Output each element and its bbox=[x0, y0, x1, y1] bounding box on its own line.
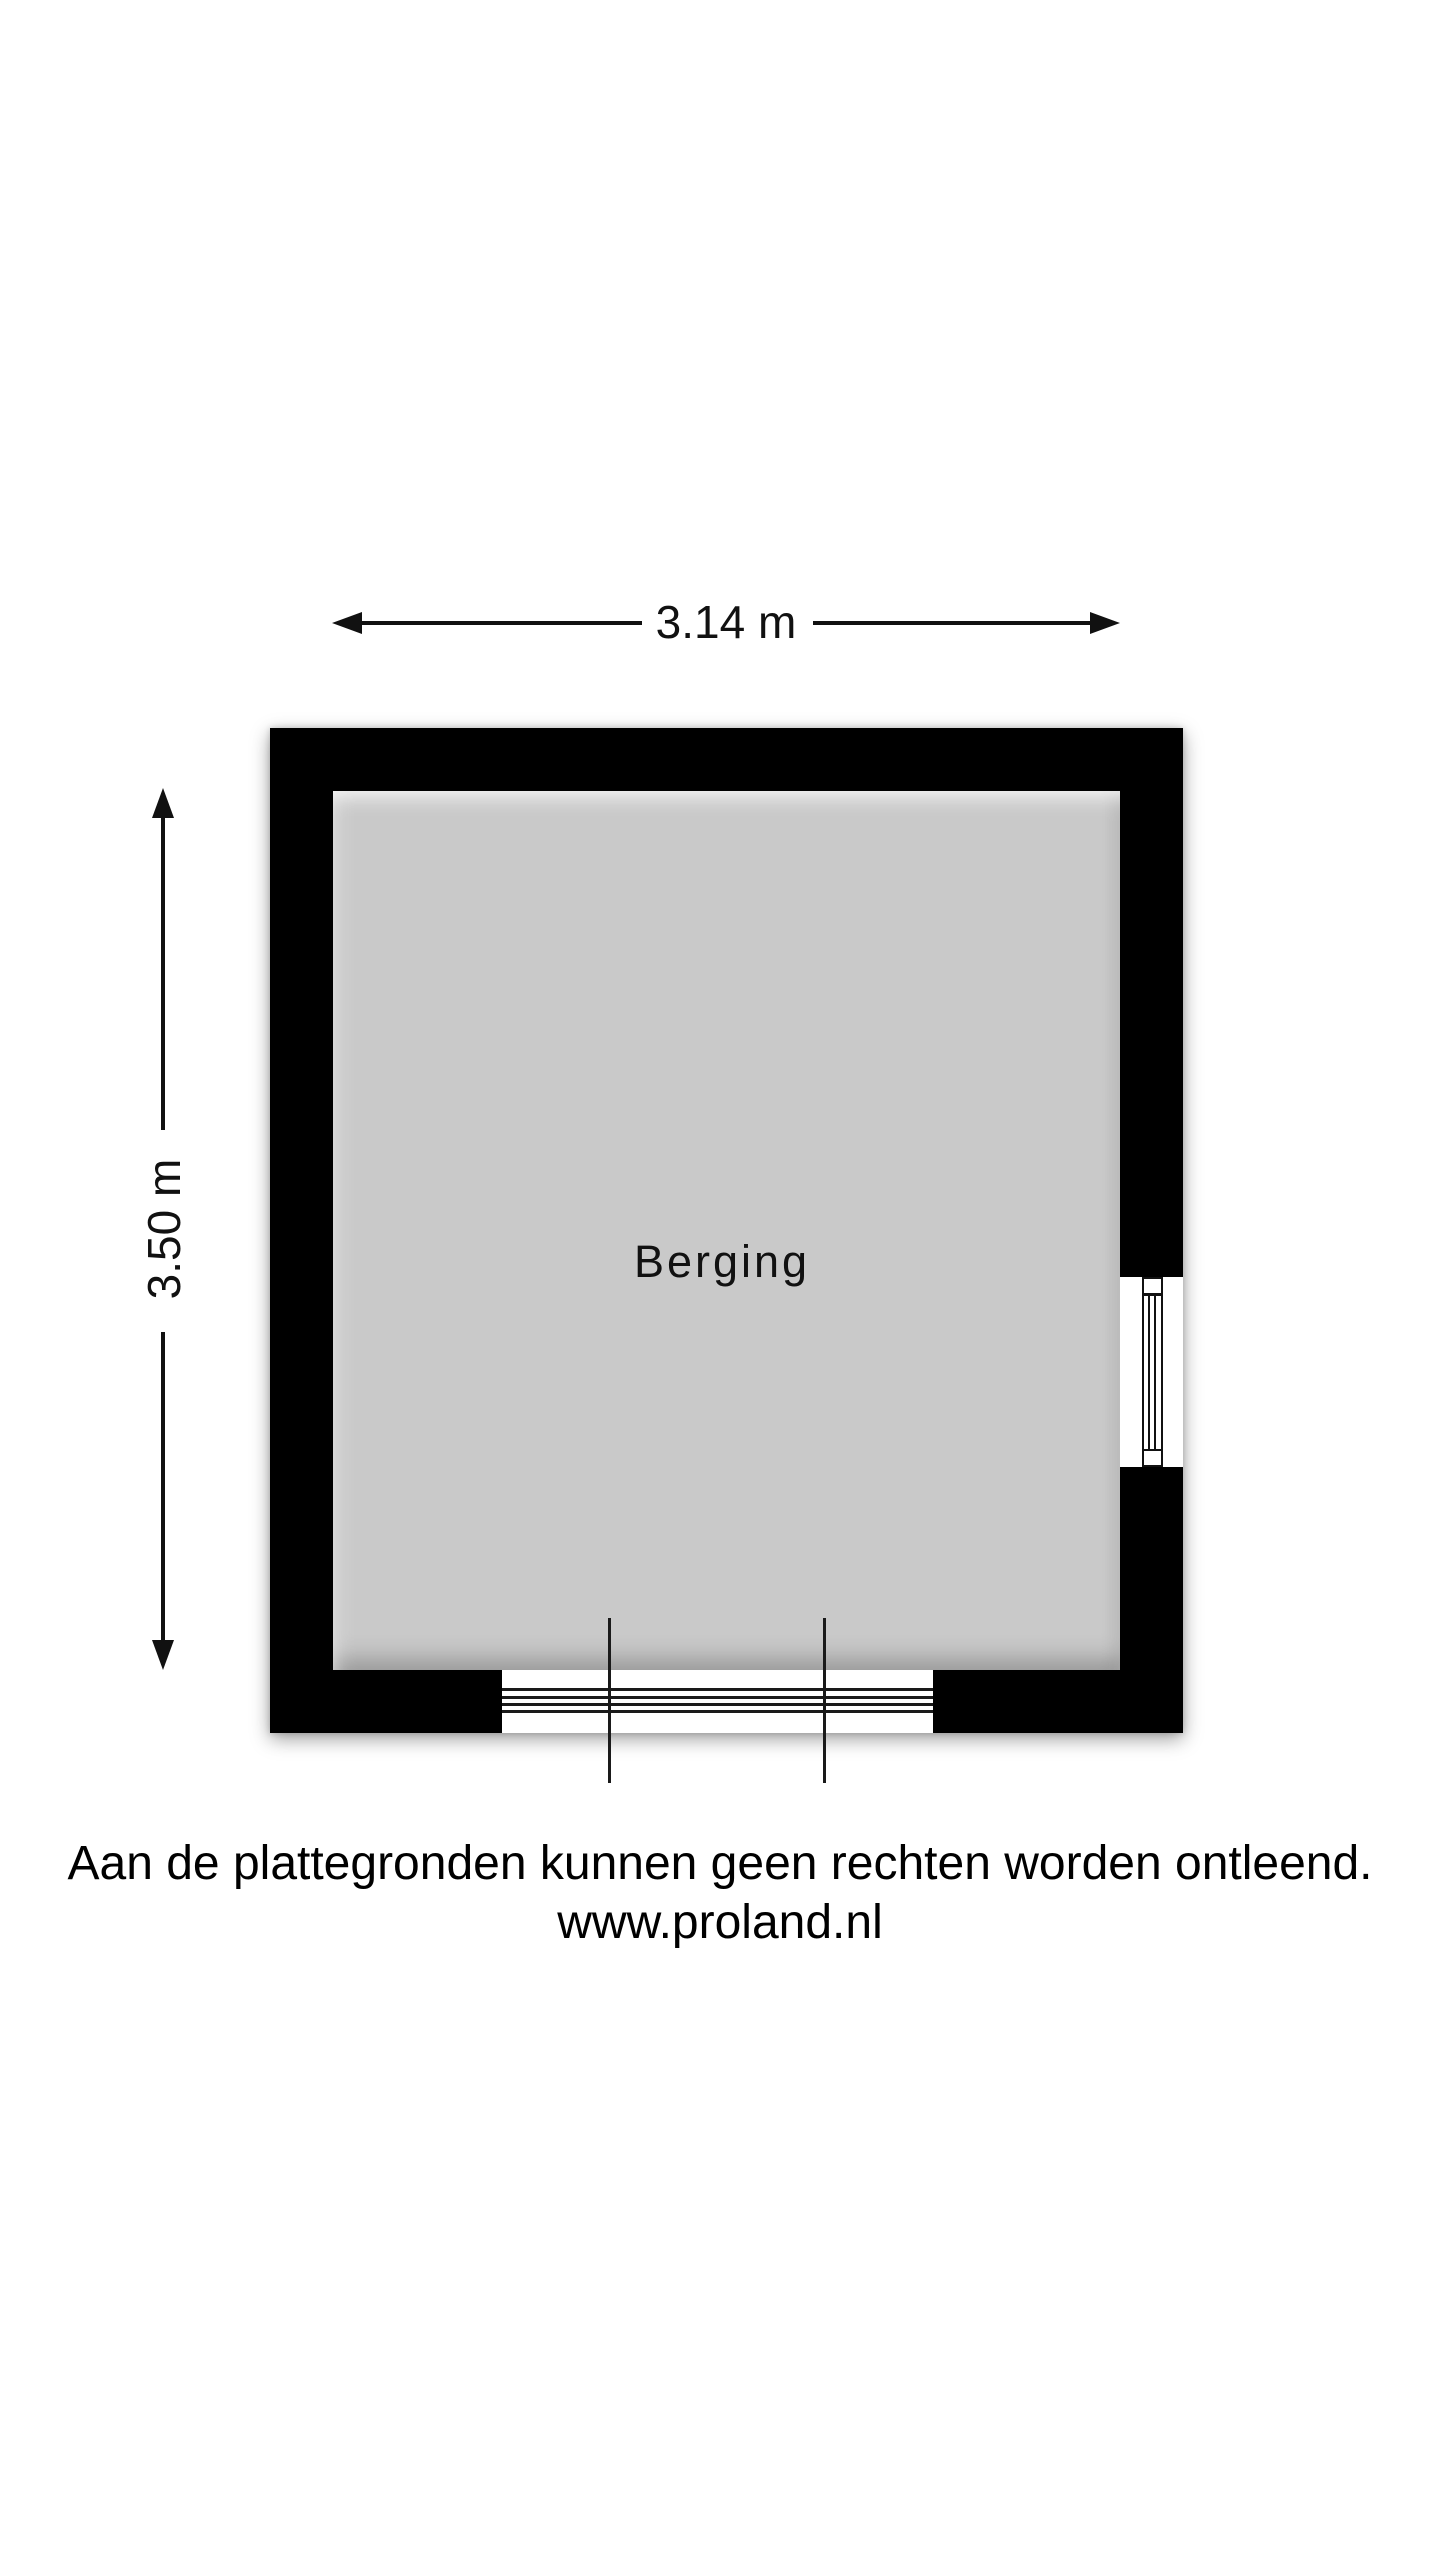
door-opening bbox=[502, 1670, 933, 1733]
arrow-right-icon bbox=[1090, 612, 1120, 634]
window-glass-line bbox=[1148, 1295, 1150, 1449]
dimension-line bbox=[813, 621, 1094, 625]
window-opening bbox=[1120, 1277, 1183, 1467]
threshold-line bbox=[502, 1688, 933, 1691]
window-glass-line bbox=[1154, 1295, 1156, 1449]
height-dimension-label: 3.50 m bbox=[137, 1159, 191, 1300]
door-jamb-line-left bbox=[608, 1618, 611, 1783]
dimension-line bbox=[161, 1332, 165, 1642]
arrow-down-icon bbox=[152, 1640, 174, 1670]
website-text: www.proland.nl bbox=[0, 1893, 1440, 1952]
dimension-line bbox=[161, 814, 165, 1130]
room-label: Berging bbox=[634, 1236, 810, 1288]
footer: Aan de plattegronden kunnen geen rechten… bbox=[0, 1834, 1440, 1952]
floor-plan-page: 3.14 m 3.50 m Berging Aan de plattegrond bbox=[0, 0, 1440, 2560]
width-dimension-label: 3.14 m bbox=[656, 595, 797, 649]
disclaimer-text: Aan de plattegronden kunnen geen rechten… bbox=[0, 1834, 1440, 1893]
threshold-line bbox=[502, 1703, 933, 1706]
window-sill-top bbox=[1144, 1293, 1161, 1296]
threshold-line bbox=[502, 1696, 933, 1699]
outer-walls bbox=[270, 728, 1183, 1733]
window-frame bbox=[1142, 1277, 1163, 1467]
threshold-line bbox=[502, 1710, 933, 1713]
dimension-line bbox=[358, 621, 642, 625]
window-sill-bottom bbox=[1144, 1449, 1161, 1452]
door-jamb-line-right bbox=[823, 1618, 826, 1783]
room-floor bbox=[333, 791, 1120, 1670]
